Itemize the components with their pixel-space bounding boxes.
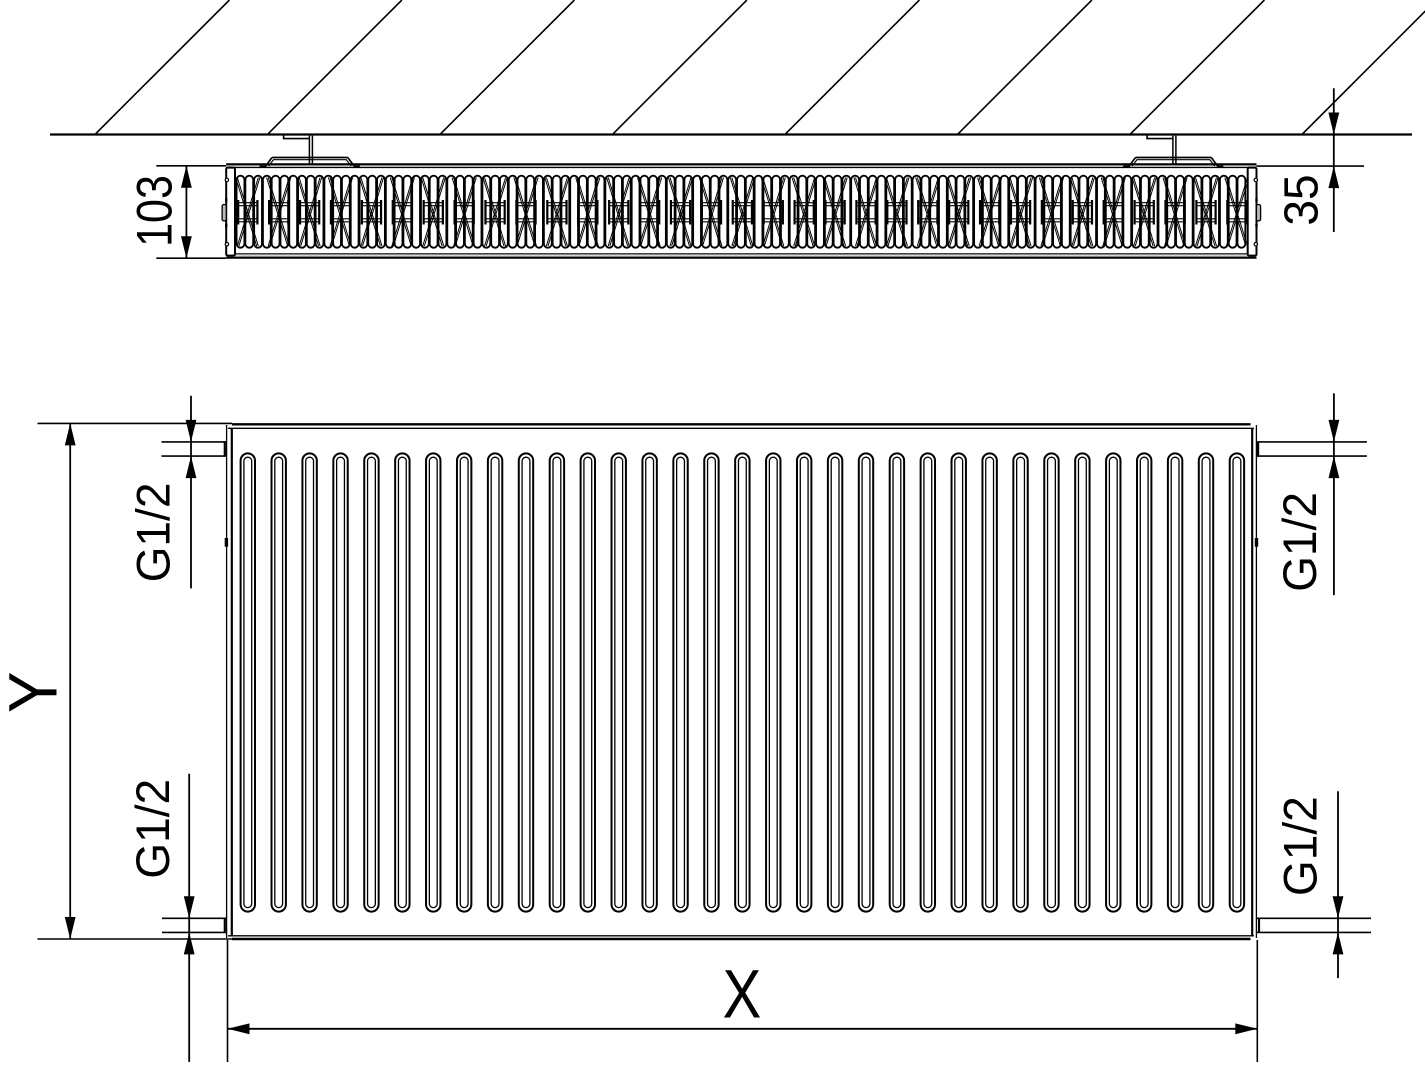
svg-text:X: X: [723, 955, 762, 1033]
svg-text:G1/2: G1/2: [126, 779, 179, 879]
svg-text:103: 103: [126, 175, 182, 247]
svg-text:35: 35: [1273, 174, 1327, 225]
svg-text:G1/2: G1/2: [1274, 796, 1327, 896]
svg-text:G1/2: G1/2: [1273, 492, 1326, 592]
svg-text:Y: Y: [0, 672, 71, 713]
svg-text:G1/2: G1/2: [127, 483, 180, 583]
